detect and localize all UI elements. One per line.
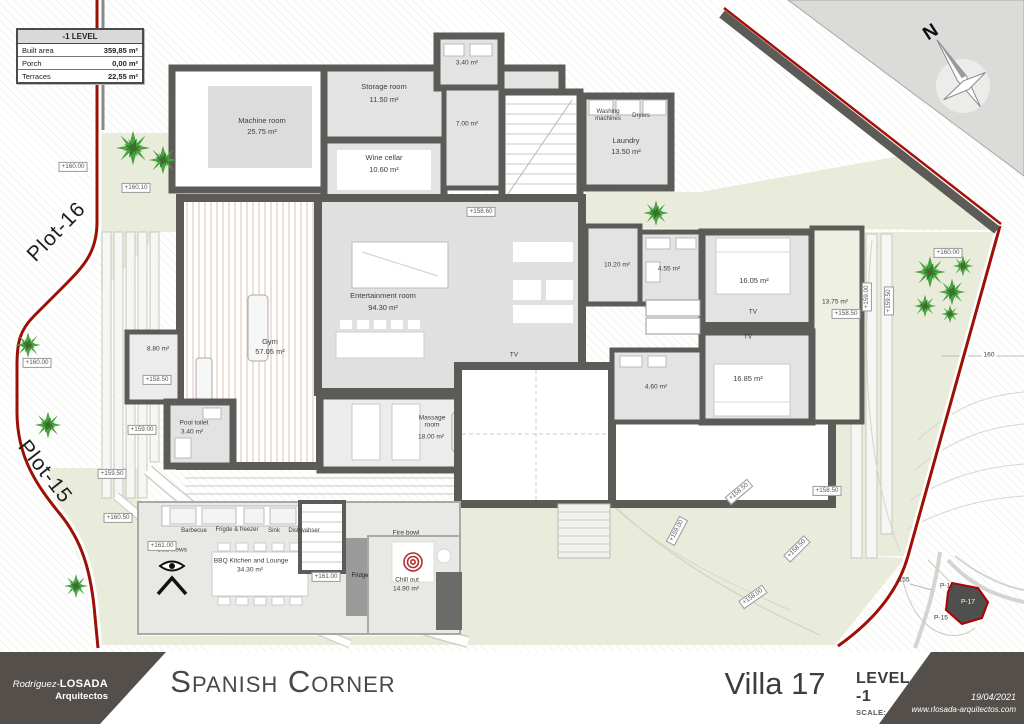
level-marker: +160.10 — [122, 183, 151, 193]
label-tv-3: TV — [510, 353, 518, 360]
firm-subtitle: Arquitectos — [13, 692, 108, 703]
tree-icon — [116, 131, 151, 166]
label-chill-out: Chill out — [395, 578, 419, 585]
tree-icon — [35, 412, 62, 439]
table-row: Terraces 22,55 m² — [18, 70, 142, 82]
level-marker: +160.00 — [934, 248, 963, 258]
label-washing-2: machines — [595, 116, 621, 122]
minimap-label-p16: P-16 — [940, 584, 954, 591]
label-bedroom2: 16.85 m² — [733, 375, 763, 383]
staircase-main — [502, 92, 580, 200]
gym-bench — [196, 358, 212, 400]
label-room-880: 8.80 m² — [147, 347, 169, 354]
label-entertainment-area: 94.30 m² — [368, 304, 398, 312]
label-pool-toilet: Pool toilet — [180, 421, 209, 428]
tree-icon — [953, 256, 974, 277]
tree-icon — [914, 256, 946, 288]
staircase-kitchen — [300, 502, 344, 572]
level-marker: +159.50 — [98, 469, 127, 479]
label-bath-455: 4.55 m² — [658, 267, 680, 274]
area-summary-table: -1 LEVEL Built area 359,85 m² Porch 0,00… — [16, 28, 144, 84]
plan-drawing: N — [0, 0, 1024, 724]
tree-icon — [149, 146, 178, 175]
minimap-label-p17: P-17 — [961, 600, 975, 607]
pool-table — [352, 242, 448, 288]
firm-name-bold: LOSADA — [60, 678, 108, 690]
tree-icon — [939, 279, 966, 306]
table-header: -1 LEVEL — [18, 30, 142, 44]
label-gym-area: 57.05 m² — [255, 348, 285, 356]
label-toilet-340: 3.40 m² — [456, 61, 478, 68]
label-massage-area: 18.00 m² — [418, 435, 444, 442]
sheet-date: 19/04/2021 — [971, 692, 1016, 702]
label-storage-area: 11.50 m² — [369, 96, 398, 104]
tree-icon — [914, 295, 937, 318]
label-massage-2: room — [424, 423, 439, 430]
contour-label-160: 160 — [981, 353, 996, 360]
level-marker: +160.00 — [23, 358, 52, 368]
label-bbq-kitchen-area: 34.30 m² — [237, 568, 263, 575]
floor-plan-sheet: N — [0, 0, 1024, 724]
hall-700 — [444, 88, 502, 188]
label-pool-toilet-area: 3.40 m² — [181, 430, 203, 437]
villa-name: Villa 17 — [700, 666, 850, 702]
level-marker: +160.00 — [59, 162, 88, 172]
label-wine: Wine cellar — [365, 154, 402, 162]
room-central — [458, 366, 612, 504]
level-marker: +159.50 — [884, 287, 894, 316]
label-storage: Storage room — [361, 83, 406, 91]
contour-label-155: 155 — [898, 578, 909, 585]
tree-icon — [15, 332, 41, 358]
room-lower-right — [612, 420, 832, 504]
label-barbecue: Barbecue — [181, 528, 207, 534]
bar-chairs — [340, 320, 420, 329]
label-fire-bowl: Fire bowl — [393, 531, 420, 538]
firm-name-script: Rodríguez- — [13, 679, 60, 690]
label-sink: Sink — [268, 528, 280, 534]
label-dishwasher: Dishwahser — [288, 528, 319, 534]
level-marker: +159.00 — [862, 283, 872, 312]
south-wall-block — [436, 572, 462, 630]
terrace-steps-south — [185, 478, 455, 494]
title-bar: Rodríguez-LOSADA Arquitectos Spanish Cor… — [0, 652, 1024, 724]
massage-table — [392, 404, 420, 460]
label-hall-700: 7.00 m² — [456, 122, 478, 129]
label-tv-1: TV — [749, 310, 757, 317]
label-dryers: Dryers — [632, 113, 650, 119]
label-wine-area: 10.60 m² — [369, 166, 399, 174]
level-marker: +158.50 — [143, 375, 172, 385]
label-terrace-1375: 13.75 m² — [822, 300, 848, 307]
minimap-label-p15: P-15 — [934, 616, 948, 623]
label-gym: Gym — [262, 338, 278, 346]
label-tv-2: TV — [744, 335, 752, 342]
label-fridge-freezer: Frigde & freezer — [215, 527, 258, 533]
table-row: Built area 359,85 m² — [18, 44, 142, 57]
label-bath-460: 4.60 m² — [645, 385, 667, 392]
firm-website: www.rlosada-arquitectos.com — [912, 705, 1016, 714]
wardrobes — [646, 300, 700, 334]
bar-table — [336, 332, 424, 358]
label-bedroom1: 16.05 m² — [739, 277, 769, 285]
room-880 — [127, 332, 180, 402]
terrace-1375 — [812, 228, 862, 422]
table-row: Porch 0,00 m² — [18, 57, 142, 70]
bed — [716, 238, 790, 294]
staircase-garden — [558, 504, 610, 558]
massage-table — [352, 404, 380, 460]
label-fridge: Fridge — [351, 573, 368, 579]
level-marker: +160.50 — [104, 513, 133, 523]
label-laundry-area: 13.50 m² — [611, 148, 641, 156]
label-laundry: Laundry — [612, 137, 639, 145]
label-machine-room: Machine room — [238, 117, 286, 125]
label-chill-out-area: 14.90 m² — [393, 587, 419, 594]
label-washing-1: Washing — [596, 109, 619, 115]
label-hall-1020: 10.20 m² — [604, 263, 630, 270]
tree-icon — [643, 200, 669, 226]
firm-logo-panel: Rodríguez-LOSADA Arquitectos — [0, 652, 170, 724]
label-bbq-kitchen: BBQ Kitchen and Lounge — [214, 559, 288, 566]
tree-icon — [64, 574, 88, 598]
label-entertainment: Entertainment room — [350, 292, 416, 300]
bed — [714, 364, 790, 416]
label-machine-area: 25.75 m² — [247, 128, 277, 136]
level-marker: +158.50 — [813, 486, 842, 496]
level-marker: +161.00 — [148, 541, 177, 551]
project-title: Spanish Corner — [168, 664, 398, 700]
level-marker: +158.50 — [832, 309, 861, 319]
level-marker: +161.00 — [312, 572, 341, 582]
tree-icon — [941, 305, 959, 323]
level-marker: +159.00 — [128, 425, 157, 435]
level-marker: +158.60 — [467, 207, 496, 217]
